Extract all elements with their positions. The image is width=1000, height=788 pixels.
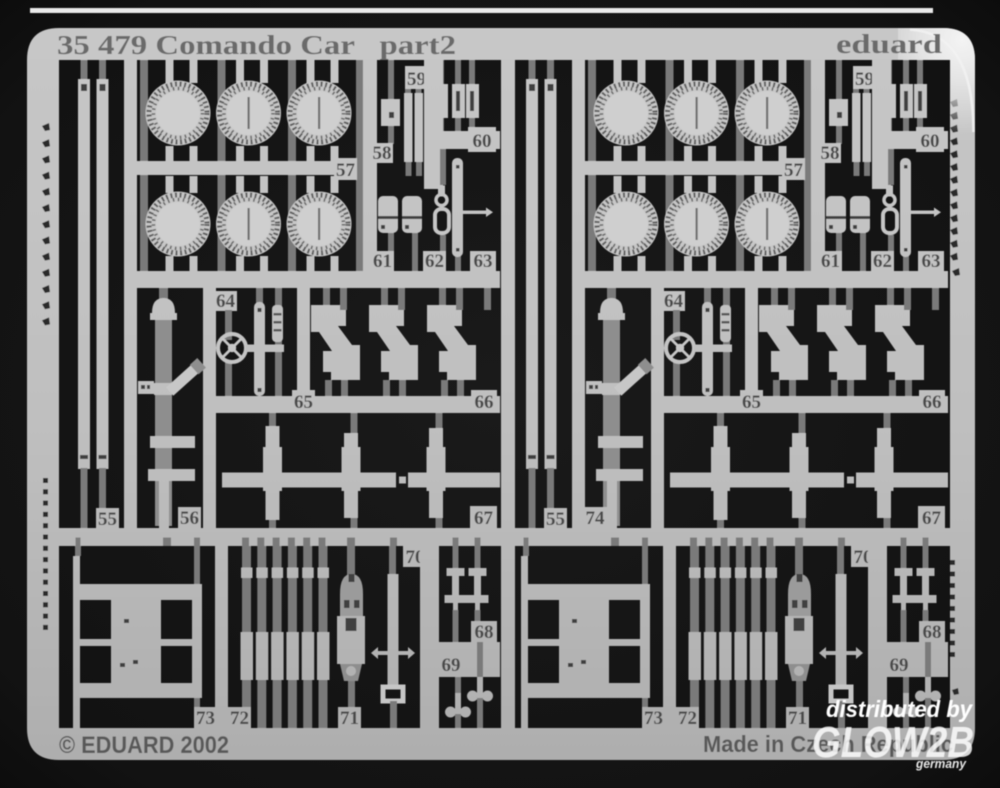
svg-text:56: 56	[180, 508, 199, 529]
svg-text:germany: germany	[915, 756, 967, 771]
svg-text:eduard: eduard	[836, 29, 942, 59]
svg-text:© EDUARD 2002: © EDUARD 2002	[59, 732, 229, 759]
svg-text:74: 74	[586, 508, 606, 529]
svg-text:35 479 Comando Car part2: 35 479 Comando Car part2	[57, 30, 456, 60]
